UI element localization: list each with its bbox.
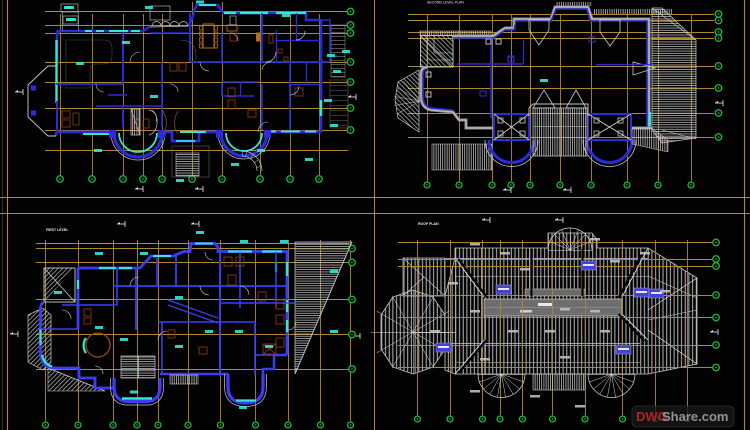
svg-text:Share.com: Share.com: [662, 409, 728, 424]
svg-text:SECOND LEVEL PLAN: SECOND LEVEL PLAN: [427, 1, 464, 5]
svg-text:FIRST LEVEL: FIRST LEVEL: [46, 228, 69, 232]
svg-text:ROOF PLAN: ROOF PLAN: [418, 222, 439, 226]
